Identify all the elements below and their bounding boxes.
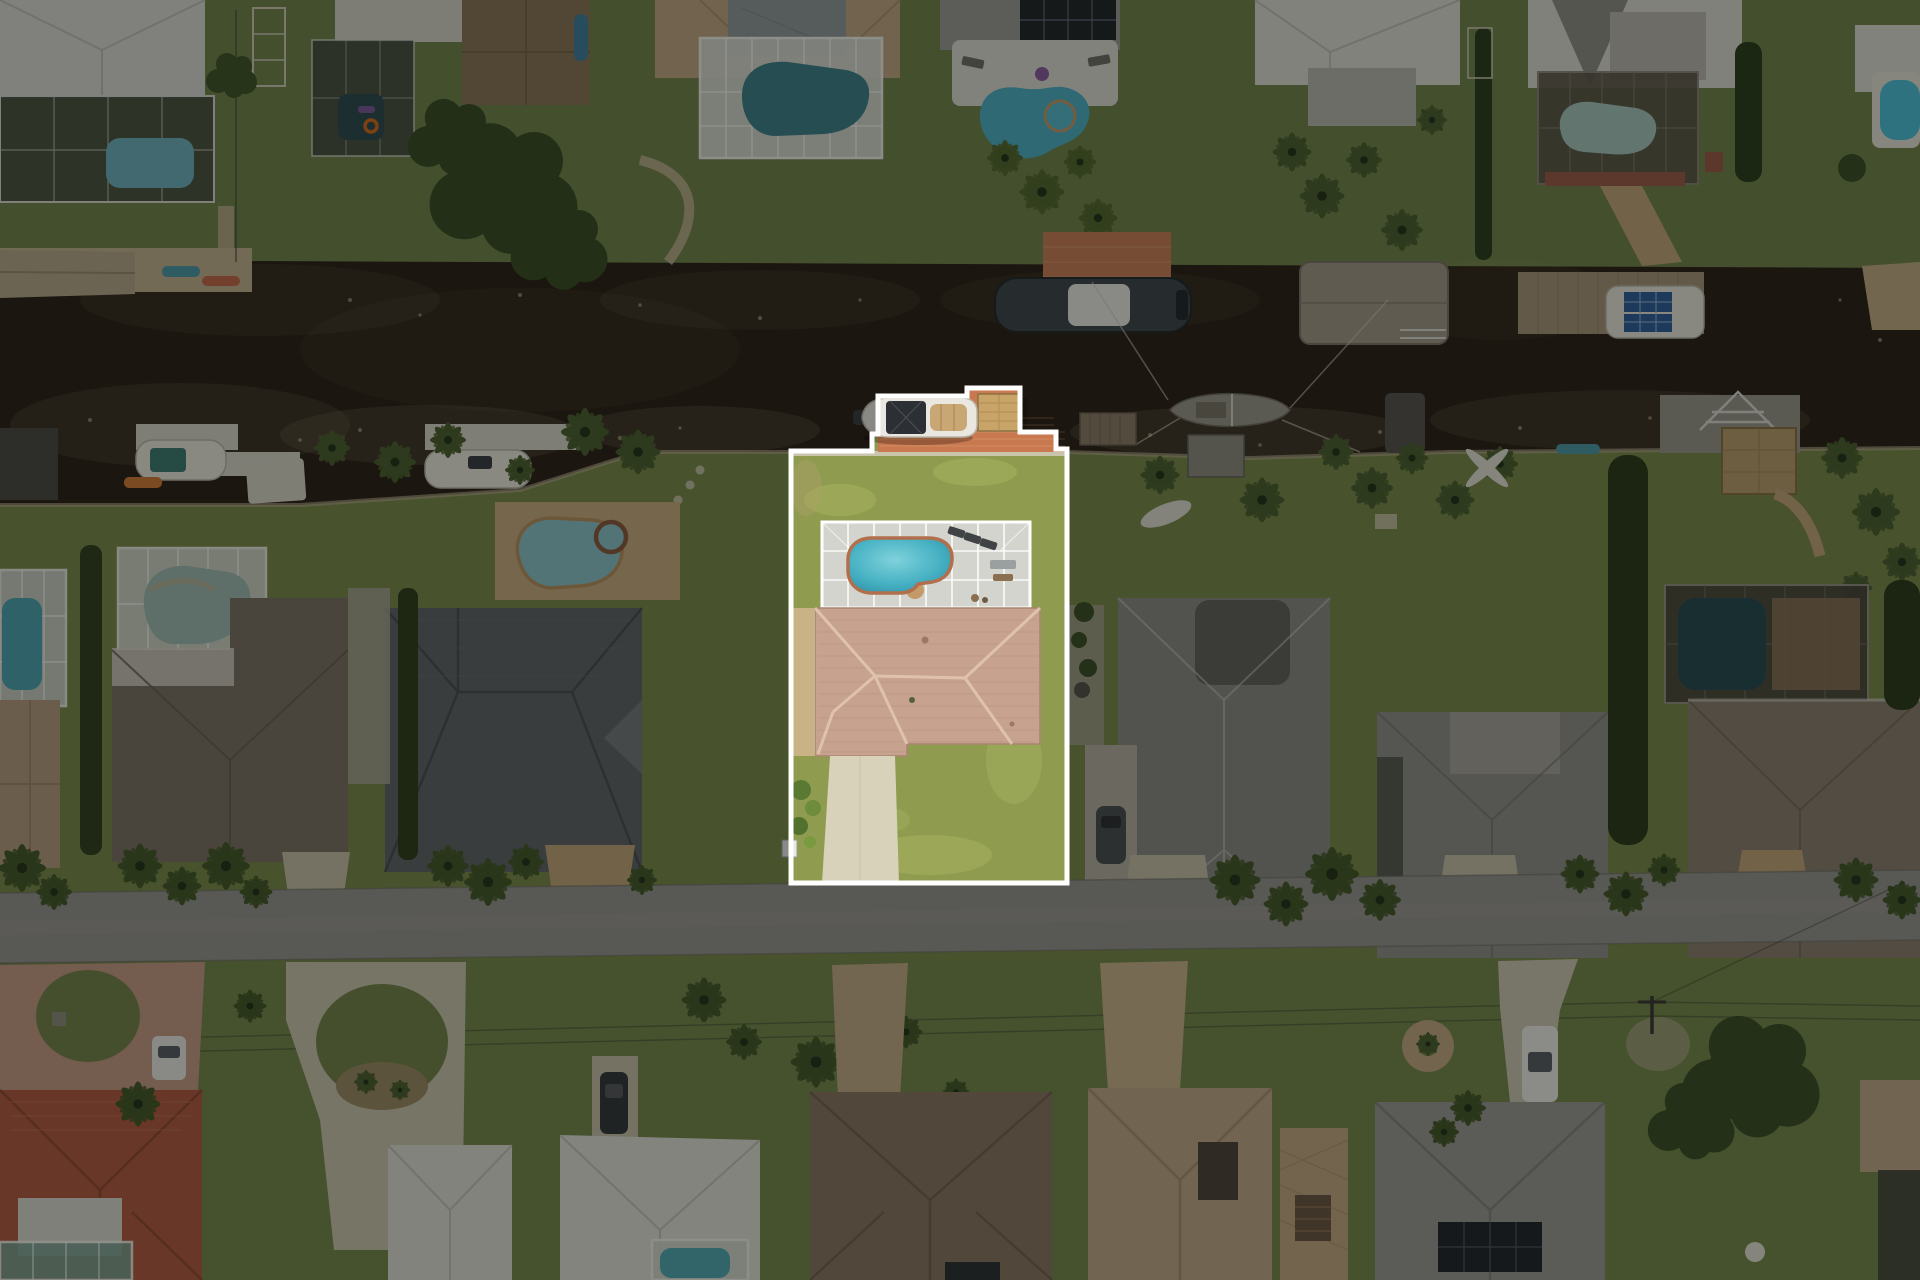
roof-vent xyxy=(922,637,929,644)
pool-enclosure xyxy=(822,522,1030,608)
roof-vent xyxy=(1010,722,1015,727)
aerial-photo xyxy=(0,0,1920,1280)
patio-table xyxy=(993,574,1013,581)
featured-lot xyxy=(790,388,1067,883)
aerial-photo-stage xyxy=(0,0,1920,1280)
side-paver-strip xyxy=(791,608,815,756)
featured-house-roof xyxy=(815,608,1040,756)
patio-bench xyxy=(990,560,1016,569)
lawn-object xyxy=(909,697,915,703)
boat-bow-deck xyxy=(930,404,967,431)
lawn-worn-patch xyxy=(790,460,822,516)
